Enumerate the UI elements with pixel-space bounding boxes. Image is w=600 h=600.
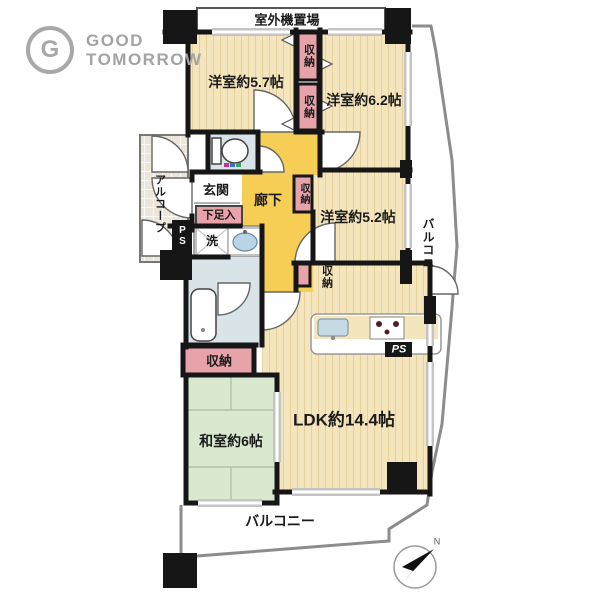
closet-label-2: 収納 [303,95,314,119]
alcove-label: アルコープ [154,174,165,234]
sink-icon [228,228,262,255]
room-western52-label: 洋室約5.2帖 [320,210,395,224]
shoe-cabinet-label: 下足入 [203,211,236,222]
closet-label-1: 収納 [303,44,314,68]
logo-letter: G [41,36,60,64]
floor-plan-graphic [0,0,600,600]
room-ldk-label: LDK約14.4帖 [293,412,395,429]
room-japanese-label: 和室約6帖 [199,434,263,448]
outdoor-unit-label: 室外機置場 [254,14,319,27]
logo-line2: TOMORROW [86,50,203,69]
room-western62-label: 洋室約6.2帖 [326,93,401,107]
compass-icon [394,546,436,588]
compass-north-label: N [434,538,441,547]
closet-label-4: 収納 [321,265,332,289]
good-tomorrow-logo: G GOOD TOMORROW [26,26,203,74]
kitchen-counter-icon [311,314,441,354]
good-tomorrow-logo-icon: G [26,26,74,74]
pipe-shaft-label-kitchen: PS [392,345,407,356]
logo-line1: GOOD [86,31,203,50]
closet-label-5: 収納 [206,355,232,368]
logo-text: GOOD TOMORROW [86,31,203,69]
balcony-label-bottom: バルコニー [245,514,315,528]
hallway-label: 廊下 [254,193,282,207]
closet-label-3: 収納 [298,183,308,205]
balcony-label-right: バルコニー [422,218,434,283]
entrance-label: 玄関 [203,184,229,197]
bathtub-icon [191,289,216,341]
floor-plan-page: G GOOD TOMORROW 室外機置場 洋室約5.7帖 洋室約6.2帖 洋室… [0,0,600,600]
room-western57-label: 洋室約5.7帖 [208,75,283,89]
laundry-label: 洗 [206,235,218,247]
pipe-shaft-label-left: PS [177,225,187,247]
